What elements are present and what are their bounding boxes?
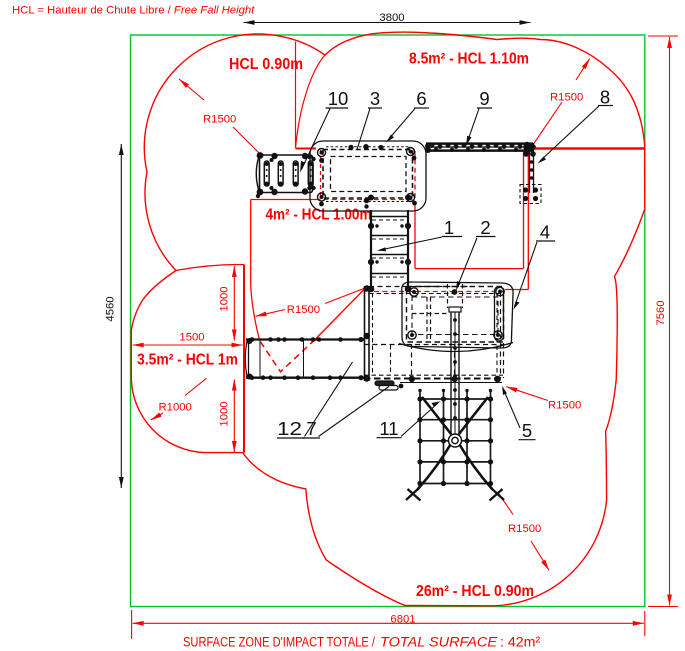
svg-text:SURFACE ZONE D'IMPACT TOTALE /: SURFACE ZONE D'IMPACT TOTALE / (183, 635, 375, 651)
svg-text:R1500: R1500 (287, 304, 320, 316)
svg-text:4560: 4560 (105, 296, 117, 321)
svg-text:1000: 1000 (219, 286, 231, 311)
svg-text:4: 4 (540, 222, 550, 243)
svg-text:3.5m² - HCL 1m: 3.5m² - HCL 1m (137, 352, 238, 369)
svg-text:1: 1 (444, 217, 454, 238)
svg-text:TOTAL SURFACE: TOTAL SURFACE (380, 635, 498, 651)
svg-text:5: 5 (522, 420, 532, 441)
svg-text:R1500: R1500 (508, 523, 541, 535)
svg-text:3800: 3800 (379, 12, 404, 24)
svg-text:26m² - HCL 0.90m: 26m² - HCL 0.90m (416, 583, 534, 600)
svg-text:R1000: R1000 (159, 402, 192, 414)
svg-text:7560: 7560 (655, 300, 667, 325)
svg-text:HCL = Hauteur de Chute Libre /: HCL = Hauteur de Chute Libre / Free Fall… (12, 5, 255, 17)
svg-text:HCL 0.90m: HCL 0.90m (229, 56, 303, 73)
svg-text:R1500: R1500 (548, 400, 581, 412)
svg-text:: 42m²: : 42m² (500, 635, 540, 651)
svg-text:R1500: R1500 (550, 92, 583, 104)
svg-text:3: 3 (370, 88, 380, 109)
svg-text:1000: 1000 (219, 401, 231, 426)
svg-text:12: 12 (277, 419, 302, 439)
svg-text:11: 11 (379, 418, 398, 439)
svg-text:9: 9 (479, 88, 489, 109)
svg-text:6801: 6801 (390, 613, 415, 625)
svg-text:1500: 1500 (179, 332, 204, 344)
svg-text:7: 7 (306, 418, 316, 439)
svg-text:R1500: R1500 (203, 114, 236, 126)
svg-text:8: 8 (600, 87, 610, 108)
svg-text:6: 6 (416, 88, 426, 109)
svg-text:8.5m² - HCL 1.10m: 8.5m² - HCL 1.10m (409, 51, 529, 68)
svg-text:4m² - HCL 1.00m: 4m² - HCL 1.00m (266, 207, 372, 224)
svg-text:2: 2 (480, 217, 490, 238)
svg-text:10: 10 (328, 88, 349, 109)
